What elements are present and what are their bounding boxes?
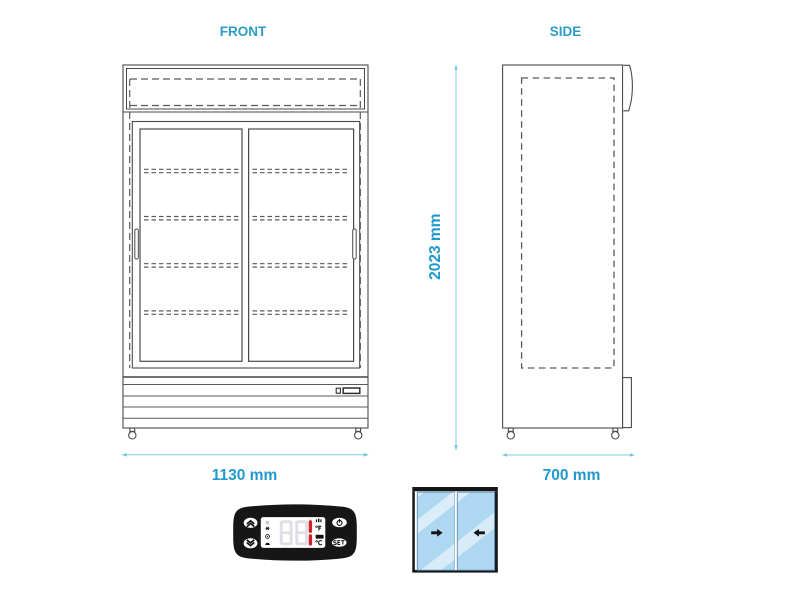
svg-text:FRONT: FRONT [220, 24, 267, 39]
svg-text:SIDE: SIDE [550, 24, 582, 39]
svg-text:2023 mm: 2023 mm [427, 214, 444, 280]
svg-text:700 mm: 700 mm [543, 467, 601, 484]
svg-text:1130 mm: 1130 mm [212, 467, 278, 484]
